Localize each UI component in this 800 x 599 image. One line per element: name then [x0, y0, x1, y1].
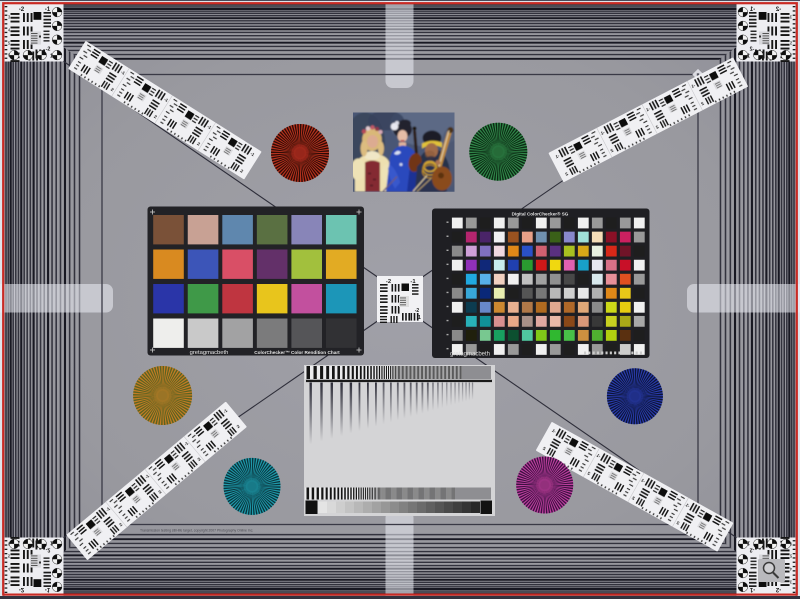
svg-text:Digital ColorChecker® SG: Digital ColorChecker® SG	[512, 211, 569, 217]
svg-text:gretagmacbeth: gretagmacbeth	[190, 350, 229, 356]
svg-text:Transmission testing still-lif: Transmission testing still-life target, …	[140, 529, 253, 533]
svg-text:ColorChecker™ Color Rendition: ColorChecker™ Color Rendition Chart	[254, 350, 340, 355]
svg-text:gretagmacbeth: gretagmacbeth	[450, 352, 490, 358]
